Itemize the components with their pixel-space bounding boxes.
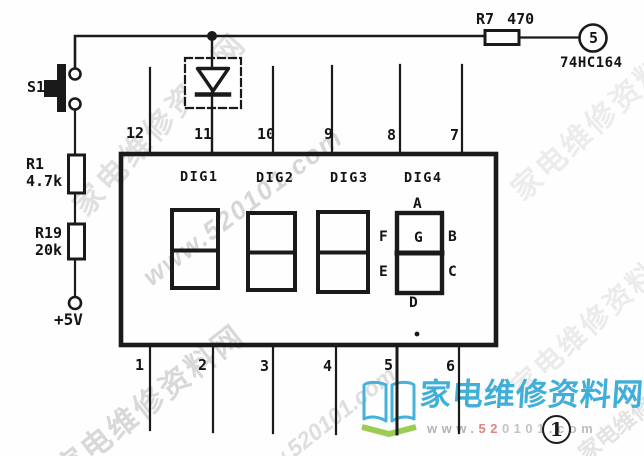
r19-label: R19 bbox=[35, 226, 62, 241]
pin-label-5: 5 bbox=[384, 358, 393, 373]
ic-name: 74HC164 bbox=[560, 56, 623, 70]
pin-label-6: 6 bbox=[446, 359, 455, 374]
r1-label: R1 bbox=[26, 157, 44, 172]
segment-e-label: E bbox=[379, 265, 388, 280]
pin-label-4: 4 bbox=[323, 359, 332, 374]
pin-label-10: 10 bbox=[257, 127, 275, 142]
circuit-artwork bbox=[0, 0, 644, 456]
digit-3-glyph bbox=[318, 212, 368, 292]
pin-label-2: 2 bbox=[198, 358, 207, 373]
dig2-label: DIG2 bbox=[256, 172, 295, 186]
ic-pin-number: 5 bbox=[589, 31, 598, 46]
decimal-point-dot bbox=[415, 332, 420, 337]
pin-label-7: 7 bbox=[450, 128, 459, 143]
top-rail-wire bbox=[75, 31, 485, 68]
segment-f-label: F bbox=[379, 230, 388, 245]
supply-label: +5V bbox=[54, 312, 83, 328]
dig1-label: DIG1 bbox=[180, 171, 219, 185]
r7-label: R7 bbox=[476, 12, 494, 27]
digit-glyphs bbox=[172, 210, 442, 336]
segment-a-label: A bbox=[413, 197, 422, 212]
pin-label-1: 1 bbox=[135, 358, 144, 373]
resistor-r1 bbox=[69, 155, 85, 224]
r7-label-row: R7 470 bbox=[476, 12, 534, 27]
segment-b-label: B bbox=[448, 230, 457, 245]
pin-label-9: 9 bbox=[324, 127, 333, 142]
dig4-label: DIG4 bbox=[404, 172, 443, 186]
resistor-r19 bbox=[69, 224, 85, 309]
switch-label: S1 bbox=[27, 80, 45, 95]
pin-label-3: 3 bbox=[260, 359, 269, 374]
bottom-pin-wires bbox=[150, 347, 459, 434]
segment-d-label: D bbox=[409, 296, 418, 311]
r19-value: 20k bbox=[35, 243, 62, 258]
digit-4-glyph bbox=[397, 213, 442, 293]
schematic-page: 家电维修资料网 www.520101.com 家电维修资料网 www.52010… bbox=[0, 0, 644, 456]
r7-value: 470 bbox=[507, 12, 534, 27]
r1-value: 4.7k bbox=[26, 174, 62, 189]
pin-label-11: 11 bbox=[194, 127, 212, 142]
pin-label-12: 12 bbox=[126, 126, 144, 141]
switch-s1 bbox=[44, 64, 81, 155]
segment-g-label: G bbox=[414, 231, 423, 246]
digit-1-glyph bbox=[172, 210, 218, 288]
digit-2-glyph bbox=[248, 213, 295, 290]
pin-label-8: 8 bbox=[387, 128, 396, 143]
supply-terminal bbox=[69, 297, 81, 309]
dig3-label: DIG3 bbox=[330, 172, 369, 186]
segment-c-label: C bbox=[448, 265, 457, 280]
